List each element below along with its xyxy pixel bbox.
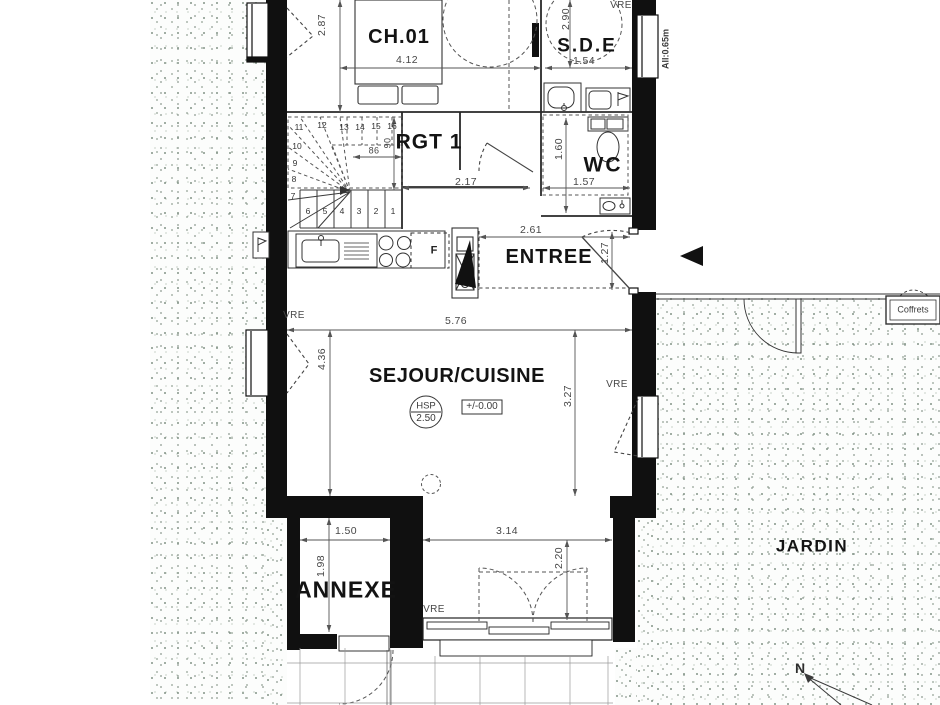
stair-step-number: 5: [323, 207, 328, 216]
stair-step-number: 11: [295, 123, 304, 132]
dimension-label: 3.27: [563, 385, 574, 407]
stair-step-number: 4: [340, 207, 345, 216]
coffrets-label: Coffrets: [897, 306, 928, 315]
dimension-label: 2.90: [561, 8, 572, 30]
room-label-sejour: SEJOUR/CUISINE: [369, 366, 545, 386]
vre-label: VRE: [283, 311, 305, 321]
stair-step-number: 2: [374, 207, 379, 216]
stair-step-number: 12: [317, 121, 326, 130]
room-label-jardin: JARDIN: [776, 538, 848, 555]
vre-label: VRE: [423, 605, 445, 615]
dimension-label: 1.27: [600, 242, 611, 264]
level-mark: +/-0.00: [466, 402, 497, 412]
vre-label: VRE: [610, 1, 632, 11]
room-label-wc: WC: [584, 155, 623, 176]
dimension-label: 2.17: [455, 177, 477, 188]
room-label-annexe: ANNEXE: [295, 579, 397, 602]
stair-step-number: 13: [339, 123, 348, 132]
plan-labels: CH.01 S.D.E RGT 1 WC ENTREE SEJOUR/CUISI…: [0, 0, 940, 705]
dimension-label: 2.87: [317, 14, 328, 36]
room-label-sde: S.D.E: [557, 37, 617, 56]
hsp-abbr: HSP: [416, 401, 436, 411]
room-label-entree: ENTREE: [505, 247, 592, 267]
fridge-label: F: [431, 246, 438, 257]
dimension-label: 2.20: [554, 547, 565, 569]
vre-label: VRE: [606, 380, 628, 390]
stair-step-number: 1: [391, 207, 396, 216]
stair-step-number: 6: [306, 207, 311, 216]
stair-step-number: 15: [371, 122, 380, 131]
dimension-label: 90: [384, 138, 393, 149]
dimension-label: 1.50: [335, 526, 357, 537]
stair-step-number: 10: [292, 142, 301, 151]
stair-step-number: 7: [291, 192, 296, 201]
hsp-value: 2.50: [416, 414, 435, 424]
stair-step-number: 8: [292, 175, 297, 184]
stair-step-number: 14: [355, 123, 364, 132]
dimension-label: 3.14: [496, 526, 518, 537]
room-label-ch01: CH.01: [368, 27, 430, 47]
stair-step-number: 16: [387, 122, 396, 131]
floor-plan: CH.01 S.D.E RGT 1 WC ENTREE SEJOUR/CUISI…: [0, 0, 940, 705]
stair-step-number: 9: [293, 159, 298, 168]
dimension-label: 4.12: [396, 55, 418, 66]
dimension-label: 86: [369, 147, 380, 156]
dimension-label: 1.57: [573, 177, 595, 188]
room-label-rgt1: RGT 1: [396, 132, 463, 153]
dimension-label: 2.61: [520, 225, 542, 236]
dimension-label: 1.60: [554, 138, 565, 160]
dimension-label: 4.36: [317, 348, 328, 370]
stair-step-number: 3: [357, 207, 362, 216]
dimension-label: 5.76: [445, 316, 467, 327]
sill-height-label: All:0.65m: [662, 29, 671, 69]
dimension-label: 1.54: [573, 56, 595, 67]
dimension-label: 1.98: [316, 555, 327, 577]
north-label: N: [795, 661, 805, 675]
